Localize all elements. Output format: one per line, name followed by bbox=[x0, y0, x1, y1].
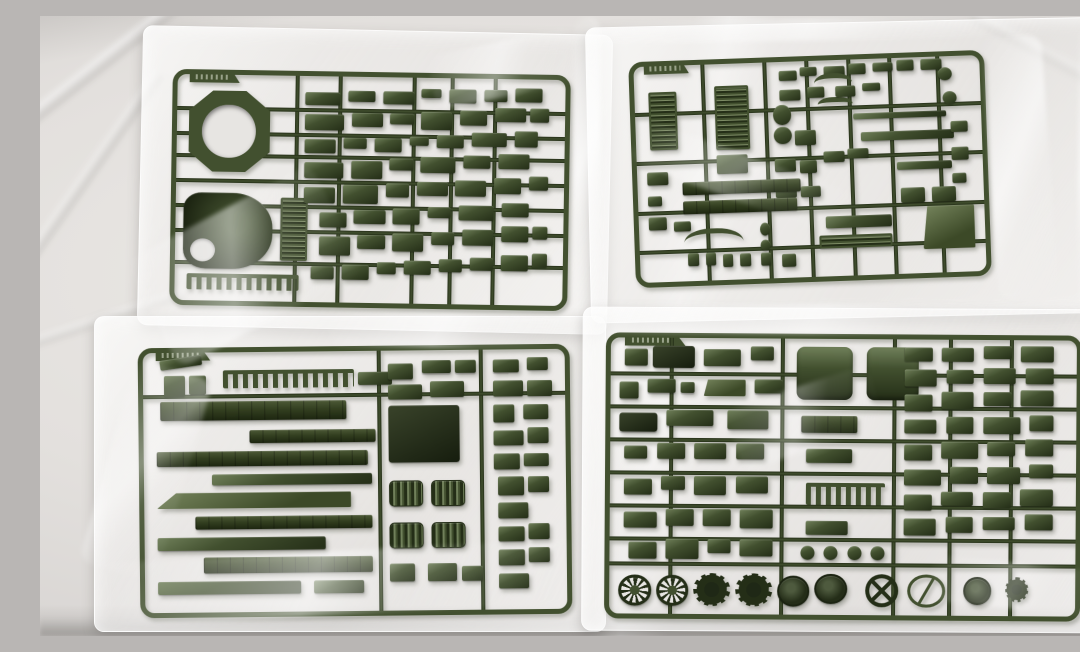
kit-part bbox=[157, 536, 326, 551]
kit-part bbox=[862, 82, 880, 91]
ring-wheel-part bbox=[907, 574, 944, 607]
kit-part bbox=[950, 120, 968, 131]
kit-part bbox=[624, 511, 657, 528]
sprue-runner-horizontal bbox=[609, 562, 1075, 569]
tapered-panel-part bbox=[157, 491, 351, 509]
kit-part bbox=[527, 380, 552, 396]
kit-part bbox=[740, 509, 773, 529]
kit-part bbox=[727, 410, 769, 430]
kit-part bbox=[515, 88, 542, 102]
kit-part bbox=[706, 252, 717, 265]
kit-part bbox=[388, 363, 413, 379]
kit-part bbox=[782, 254, 796, 267]
kit-part bbox=[498, 477, 524, 495]
kit-part bbox=[795, 130, 816, 146]
kit-part bbox=[751, 347, 774, 361]
small-disc-part bbox=[847, 546, 861, 560]
kit-part bbox=[983, 368, 1016, 385]
kit-part bbox=[779, 70, 797, 81]
road-wheel-part bbox=[777, 576, 810, 607]
kit-part bbox=[493, 404, 514, 422]
kit-part bbox=[835, 85, 856, 97]
kit-part bbox=[430, 381, 464, 397]
kit-part bbox=[343, 185, 378, 204]
sprue-bottom-right bbox=[604, 332, 1080, 621]
kit-part bbox=[428, 563, 458, 581]
ribbed-drum-part bbox=[431, 480, 465, 506]
kit-part bbox=[896, 59, 914, 70]
kit-part bbox=[304, 162, 343, 178]
sprue-label-tab bbox=[644, 62, 689, 75]
kit-part bbox=[942, 348, 975, 362]
dark-block-part bbox=[388, 404, 460, 462]
kit-part bbox=[494, 178, 521, 194]
kit-part bbox=[532, 226, 548, 240]
kit-part bbox=[1021, 390, 1054, 407]
hull-plate-part bbox=[195, 515, 372, 530]
kit-part bbox=[799, 160, 817, 174]
kit-part bbox=[348, 90, 375, 102]
small-disc-part bbox=[938, 67, 952, 80]
kit-part bbox=[428, 207, 451, 219]
kit-part bbox=[987, 467, 1020, 484]
kit-part bbox=[390, 159, 413, 171]
kit-part bbox=[421, 157, 456, 173]
kit-part bbox=[374, 138, 401, 152]
kit-part bbox=[528, 476, 549, 492]
small-disc-part bbox=[800, 546, 814, 560]
kit-part bbox=[1021, 346, 1054, 363]
engine-grille-part bbox=[819, 233, 892, 248]
kit-part bbox=[982, 517, 1015, 531]
kit-part bbox=[532, 254, 548, 268]
road-wheel-part bbox=[963, 577, 991, 605]
kit-part bbox=[624, 445, 647, 459]
kit-part bbox=[304, 187, 335, 203]
kit-part bbox=[319, 212, 346, 228]
kit-part bbox=[941, 442, 978, 459]
kit-part bbox=[666, 509, 694, 526]
kit-part bbox=[499, 503, 529, 519]
ribbed-drum-part bbox=[389, 480, 423, 506]
kit-part bbox=[648, 379, 676, 393]
ribbed-drum-part bbox=[389, 522, 423, 548]
kit-part bbox=[673, 221, 691, 232]
kit-part bbox=[1024, 514, 1052, 531]
kit-part bbox=[462, 230, 493, 246]
kit-part bbox=[983, 417, 1020, 434]
kit-part bbox=[493, 380, 523, 396]
kit-part bbox=[904, 395, 932, 412]
kit-part bbox=[723, 254, 734, 267]
kit-part bbox=[529, 547, 550, 563]
kit-part bbox=[780, 89, 801, 101]
kit-part bbox=[946, 417, 974, 434]
kit-part bbox=[736, 476, 769, 493]
kit-part bbox=[484, 90, 507, 102]
sprues-layer bbox=[40, 16, 1080, 636]
kit-part bbox=[904, 419, 937, 433]
kit-part bbox=[354, 210, 385, 224]
kit-part bbox=[319, 237, 350, 256]
hull-plate-part bbox=[249, 429, 376, 443]
kit-part bbox=[740, 540, 773, 557]
sprue-top-left bbox=[169, 69, 571, 311]
kit-part bbox=[472, 133, 507, 147]
kit-part bbox=[625, 349, 648, 366]
kit-part bbox=[694, 443, 727, 460]
kit-part bbox=[946, 370, 974, 384]
kit-part bbox=[341, 264, 368, 280]
kit-part bbox=[455, 180, 486, 196]
kit-part bbox=[806, 449, 853, 463]
hull-plate-part bbox=[204, 556, 373, 573]
kit-part bbox=[951, 146, 969, 160]
kit-part bbox=[388, 384, 422, 400]
kit-part bbox=[624, 478, 652, 495]
kit-part bbox=[461, 565, 482, 581]
kit-part bbox=[903, 494, 931, 511]
kit-part bbox=[404, 261, 431, 275]
curved-part bbox=[684, 228, 743, 245]
road-wheel-part bbox=[814, 573, 847, 604]
kit-part bbox=[848, 63, 866, 74]
kit-part bbox=[499, 573, 529, 589]
kit-part bbox=[501, 255, 528, 271]
kit-part bbox=[932, 186, 957, 202]
kit-part bbox=[422, 89, 442, 98]
kit-part bbox=[661, 476, 684, 490]
sprue-bottom-left bbox=[138, 344, 573, 619]
kit-part bbox=[896, 160, 952, 171]
kit-part bbox=[657, 443, 685, 460]
kit-part bbox=[383, 91, 414, 105]
drive-sprocket-part bbox=[1005, 577, 1028, 602]
kit-part bbox=[1029, 464, 1052, 478]
kit-part bbox=[189, 376, 206, 394]
turret-ring-part bbox=[188, 90, 271, 173]
kit-part bbox=[314, 580, 365, 594]
sprue-runner-vertical bbox=[377, 351, 384, 611]
kit-part bbox=[704, 349, 741, 366]
kit-part bbox=[952, 172, 966, 183]
sprue-label-tab bbox=[189, 71, 240, 83]
kit-part bbox=[357, 235, 384, 249]
kit-part bbox=[463, 155, 490, 169]
kit-part bbox=[499, 549, 524, 565]
kit-part bbox=[528, 523, 549, 539]
kit-part bbox=[211, 473, 371, 485]
kit-part bbox=[984, 345, 1012, 359]
parts-comb-strip bbox=[223, 369, 354, 389]
kit-part bbox=[775, 159, 796, 173]
kit-part bbox=[305, 92, 340, 106]
kit-part bbox=[393, 208, 420, 224]
kit-part bbox=[343, 138, 366, 150]
kit-part bbox=[523, 404, 548, 420]
kit-part bbox=[901, 187, 926, 203]
kit-part bbox=[529, 177, 549, 191]
kit-part bbox=[800, 67, 818, 76]
hull-plate-part bbox=[156, 450, 367, 468]
kit-part bbox=[736, 443, 764, 460]
kit-part bbox=[310, 266, 333, 280]
kit-part bbox=[800, 186, 821, 198]
sprue-top-right bbox=[628, 50, 992, 288]
engine-grille-part bbox=[714, 85, 751, 151]
kit-part bbox=[904, 469, 941, 486]
kit-part bbox=[158, 580, 302, 595]
kit-part bbox=[164, 376, 185, 397]
kit-part bbox=[703, 509, 731, 526]
kit-part bbox=[823, 151, 844, 163]
parts-comb-strip bbox=[186, 273, 299, 291]
cross-ring-wheel-part bbox=[865, 574, 898, 607]
engine-grille-part bbox=[280, 198, 308, 262]
kit-part bbox=[920, 59, 941, 71]
small-disc-part bbox=[774, 126, 792, 144]
kit-part bbox=[950, 467, 978, 484]
kit-part bbox=[524, 453, 549, 466]
kit-part bbox=[1030, 415, 1053, 432]
engine-grille-part bbox=[648, 92, 678, 151]
kit-part bbox=[807, 86, 825, 97]
parts-comb-strip bbox=[806, 482, 885, 505]
kit-part bbox=[470, 257, 493, 271]
kit-part bbox=[351, 160, 382, 179]
kit-part bbox=[904, 370, 937, 387]
fuel-tank-part bbox=[797, 347, 853, 400]
small-disc-part bbox=[824, 546, 838, 560]
kit-part bbox=[455, 360, 476, 373]
kit-part bbox=[449, 90, 476, 104]
kit-part bbox=[761, 252, 772, 265]
kit-part bbox=[421, 112, 452, 131]
kit-part bbox=[527, 357, 548, 370]
kit-part bbox=[988, 442, 1016, 456]
kit-part bbox=[416, 182, 447, 196]
kit-part bbox=[352, 113, 383, 127]
kit-part bbox=[431, 232, 454, 246]
kit-part bbox=[904, 444, 932, 461]
kit-part bbox=[501, 203, 528, 217]
kit-part bbox=[853, 110, 947, 120]
kit-part bbox=[825, 214, 891, 229]
kit-part bbox=[665, 539, 698, 559]
kit-part bbox=[688, 253, 699, 266]
kit-part bbox=[439, 259, 462, 273]
tapered-panel-part bbox=[704, 379, 746, 396]
kit-part bbox=[941, 392, 974, 409]
kit-part bbox=[755, 380, 783, 394]
drive-sprocket-part bbox=[735, 573, 772, 606]
hull-plate-part bbox=[160, 400, 346, 420]
idler-wheel-part bbox=[656, 575, 689, 606]
kit-part bbox=[376, 262, 396, 274]
kit-part bbox=[647, 172, 668, 186]
kit-part bbox=[410, 136, 430, 145]
kit-part bbox=[628, 542, 656, 559]
turret-casting-part bbox=[182, 192, 272, 270]
kit-part bbox=[501, 226, 528, 242]
kit-part bbox=[390, 113, 413, 125]
kit-part bbox=[385, 183, 408, 197]
kit-part bbox=[945, 516, 973, 533]
kit-part bbox=[494, 453, 519, 469]
kit-part bbox=[493, 360, 518, 373]
kit-part bbox=[620, 382, 639, 399]
kit-part bbox=[460, 110, 487, 126]
drive-sprocket-part bbox=[693, 573, 730, 606]
kit-part bbox=[904, 348, 932, 362]
kit-part bbox=[305, 114, 344, 130]
dark-block-part bbox=[653, 346, 695, 368]
kit-part bbox=[495, 108, 526, 122]
ribbed-drum-part bbox=[431, 521, 465, 547]
kit-part bbox=[707, 540, 730, 554]
kit-part bbox=[437, 135, 464, 149]
kit-part bbox=[983, 492, 1011, 509]
small-disc-part bbox=[942, 90, 956, 103]
kit-part bbox=[499, 526, 524, 542]
kit-part bbox=[648, 196, 662, 207]
small-disc-part bbox=[773, 105, 791, 125]
kit-part bbox=[392, 233, 423, 252]
curved-part bbox=[818, 96, 853, 106]
kit-part bbox=[716, 154, 748, 175]
kit-part bbox=[1025, 368, 1053, 385]
tapered-panel-part bbox=[922, 204, 975, 249]
kit-part bbox=[666, 410, 713, 427]
small-disc-part bbox=[870, 546, 884, 560]
kit-part bbox=[459, 205, 494, 221]
kit-part bbox=[305, 139, 336, 153]
kit-part bbox=[694, 476, 727, 496]
photo-model-kit-sprues bbox=[40, 16, 1080, 636]
kit-part bbox=[1020, 489, 1053, 506]
hull-plate-part bbox=[801, 416, 857, 433]
kit-part bbox=[530, 109, 550, 123]
kit-part bbox=[680, 382, 694, 393]
kit-part bbox=[740, 253, 751, 266]
kit-part bbox=[903, 519, 936, 536]
kit-part bbox=[1025, 440, 1053, 457]
kit-part bbox=[527, 427, 548, 443]
kit-part bbox=[983, 392, 1011, 406]
kit-part bbox=[847, 148, 868, 160]
kit-part bbox=[872, 62, 893, 71]
sprue-label-tab bbox=[625, 334, 686, 345]
dark-block-part bbox=[620, 412, 657, 432]
kit-part bbox=[941, 491, 974, 505]
kit-part bbox=[649, 217, 667, 231]
kit-part bbox=[514, 131, 538, 147]
kit-part bbox=[390, 564, 416, 582]
kit-part bbox=[421, 360, 451, 373]
idler-wheel-part bbox=[618, 575, 651, 606]
kit-part bbox=[498, 154, 529, 170]
kit-part bbox=[805, 521, 847, 535]
hull-plate-part bbox=[683, 198, 798, 215]
kit-part bbox=[494, 430, 524, 446]
